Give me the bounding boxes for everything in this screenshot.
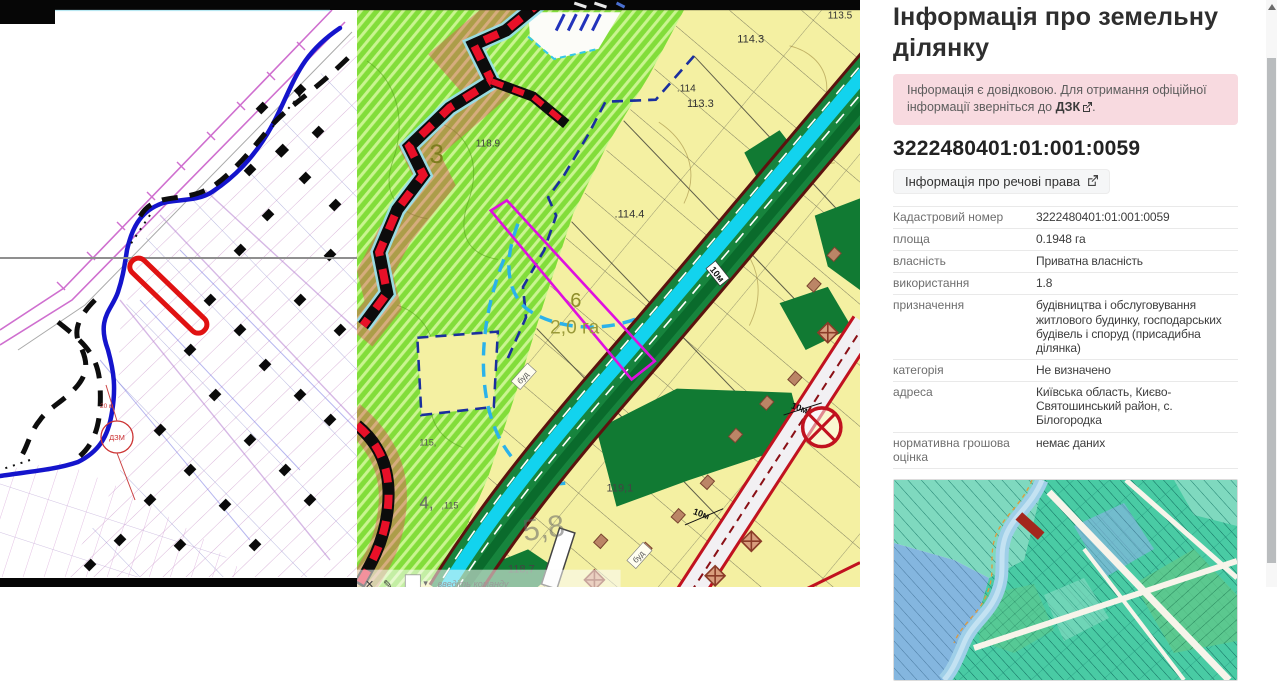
cad-command-bar[interactable]: ✕ ✎ ▾ введіть команду — [357, 570, 621, 587]
close-icon: ✕ — [365, 579, 374, 587]
detail-value: немає даних — [1036, 436, 1238, 464]
notice-text-end: . — [1092, 100, 1095, 114]
panel-scrollbar[interactable] — [1266, 0, 1277, 587]
detail-value: Київська область, Києво-Святошинський ра… — [1036, 385, 1238, 427]
command-box — [405, 575, 420, 587]
info-notice: Інформація є довідковою. Для отримання о… — [893, 74, 1238, 125]
svg-text:114.3: 114.3 — [737, 34, 764, 46]
detail-label: категорія — [893, 363, 1036, 377]
cad-map-artwork: ДЗМ 20 м — [0, 0, 357, 587]
table-row: площа 0.1948 га — [893, 229, 1238, 251]
zoning-map-view[interactable]: 113.5 114.3 .114 113.3 .114.4 118.9 3 6 … — [357, 0, 860, 587]
detail-value: Приватна власність — [1036, 254, 1238, 268]
cad-map-view[interactable]: ДЗМ 20 м — [0, 0, 357, 587]
svg-text:,115: ,115 — [442, 501, 459, 511]
parcel-details-table: Кадастровий номер 3222480401:01:001:0059… — [893, 206, 1238, 469]
detail-value: 0.1948 га — [1036, 232, 1238, 246]
table-row: адреса Київська область, Києво-Святошинс… — [893, 382, 1238, 432]
scrollbar-up-arrow[interactable] — [1268, 4, 1276, 10]
svg-text:.114.4: .114.4 — [615, 209, 645, 221]
table-row: категорія Не визначено — [893, 360, 1238, 382]
parcel-info-panel: Інформація про земельну ділянку Інформац… — [860, 0, 1266, 587]
detail-value: будівництва і обслуговування житлового б… — [1036, 298, 1238, 355]
detail-label: площа — [893, 232, 1036, 246]
table-row: нормативна грошова оцінка немає даних — [893, 433, 1238, 469]
svg-text:119,1: 119,1 — [606, 482, 633, 494]
map-top-bar — [357, 0, 860, 10]
rights-info-button[interactable]: Інформація про речові права — [893, 169, 1110, 194]
table-row: використання 1.8 — [893, 273, 1238, 295]
map-bottom-bar — [0, 578, 357, 587]
external-link-icon — [1087, 174, 1098, 189]
detail-value: 1.8 — [1036, 276, 1238, 290]
svg-text:113.5: 113.5 — [828, 10, 853, 21]
no-entry-sign — [803, 408, 841, 447]
dzm-label: ДЗМ — [109, 433, 125, 442]
page-title: Інформація про земельну ділянку — [893, 0, 1238, 64]
table-row: Кадастровий номер 3222480401:01:001:0059 — [893, 207, 1238, 229]
zoning-map-artwork: 113.5 114.3 .114 113.3 .114.4 118.9 3 6 … — [357, 0, 860, 587]
minimap-artwork — [894, 480, 1237, 680]
distance-label: 20 м — [100, 403, 114, 410]
detail-label: призначення — [893, 298, 1036, 355]
svg-text:6: 6 — [570, 290, 581, 312]
detail-value: 3222480401:01:001:0059 — [1036, 210, 1238, 224]
detail-label: власність — [893, 254, 1036, 268]
svg-text:118.9: 118.9 — [476, 138, 501, 149]
svg-text:2,0 га: 2,0 га — [550, 318, 599, 339]
table-row: призначення будівництва і обслуговування… — [893, 295, 1238, 360]
detail-value: Не визначено — [1036, 363, 1238, 377]
svg-text:.114: .114 — [677, 84, 696, 95]
svg-text:115,: 115, — [419, 438, 436, 448]
svg-text:4,: 4, — [419, 493, 433, 513]
dropdown-icon: ▾ — [423, 578, 428, 587]
svg-text:5,8: 5,8 — [521, 509, 567, 548]
rights-info-label: Інформація про речові права — [905, 174, 1080, 189]
command-hint: введіть команду — [437, 579, 508, 587]
detail-label: використання — [893, 276, 1036, 290]
detail-label: нормативна грошова оцінка — [893, 436, 1036, 464]
detail-label: адреса — [893, 385, 1036, 427]
svg-text:3: 3 — [429, 139, 444, 169]
pencil-icon: ✎ — [383, 579, 392, 587]
detail-label: Кадастровий номер — [893, 210, 1036, 224]
minimap[interactable] — [893, 479, 1238, 681]
svg-text:113.3: 113.3 — [687, 98, 714, 110]
dzk-link[interactable]: ДЗК — [1056, 100, 1081, 114]
parcel-number: 3222480401:01:001:0059 — [893, 137, 1238, 161]
app-window: ДЗМ 20 м — [0, 0, 1280, 587]
table-row: власність Приватна власність — [893, 251, 1238, 273]
scrollbar-thumb[interactable] — [1267, 58, 1276, 563]
external-link-icon — [1082, 100, 1092, 117]
